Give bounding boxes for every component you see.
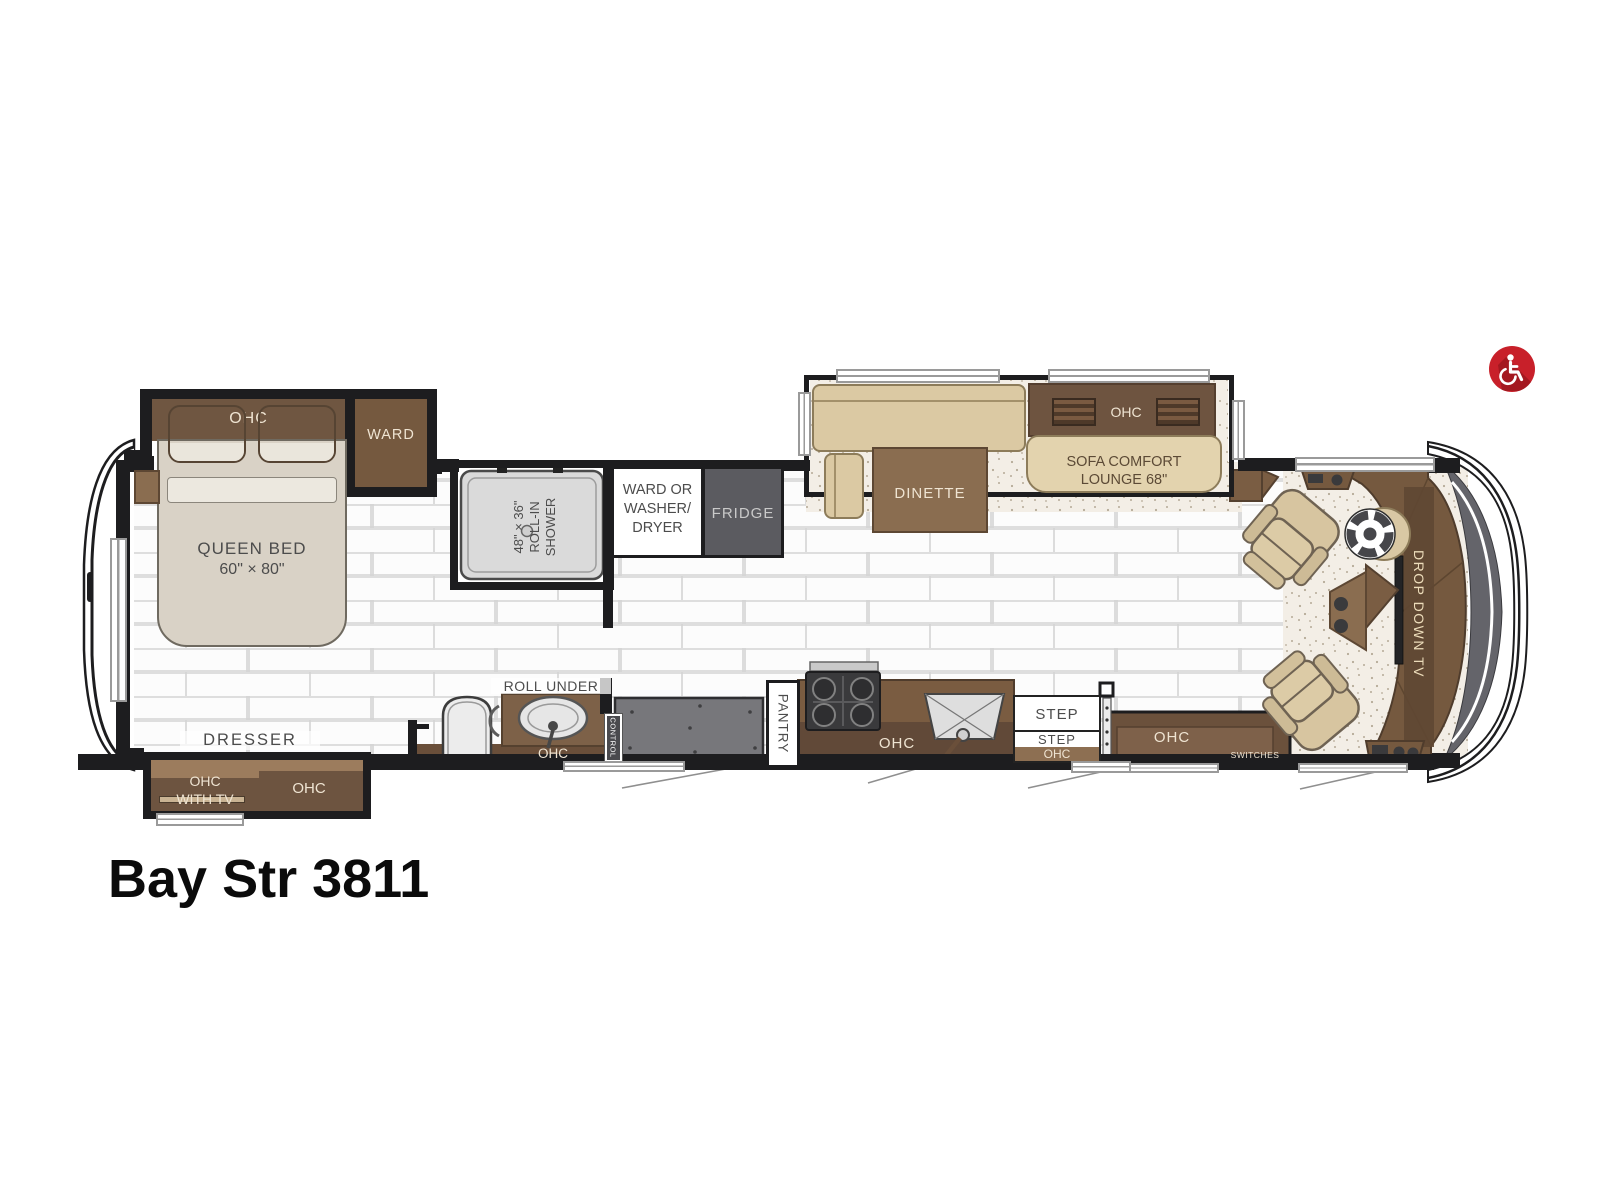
window-frame	[798, 392, 811, 456]
bath-wall-stub	[600, 678, 612, 714]
toilet-icon	[443, 697, 491, 760]
fridge-label: FRIDGE	[705, 505, 781, 522]
vent-icon	[1156, 398, 1200, 426]
bed-size-label: 60" × 80"	[159, 561, 345, 579]
slide-window-frame	[156, 813, 244, 826]
slide-tray	[615, 698, 763, 760]
wardrobe: WARD	[345, 389, 437, 497]
pillow	[168, 405, 246, 463]
bath-door-stub	[408, 720, 417, 762]
wheelchair-icon	[1488, 345, 1536, 393]
floorplan-page: OHC WARD QUEEN BED 60" × 80" DRESSER OHC…	[0, 0, 1600, 1200]
stove-icon	[806, 662, 880, 730]
bedroom-tv	[159, 796, 245, 803]
dinette-chair	[824, 453, 864, 519]
step-upper-label: STEP	[1015, 706, 1099, 723]
bed-label: QUEEN BED	[159, 539, 345, 559]
steering-wheel-icon	[1345, 508, 1410, 560]
sofa-ohc-cabinet: OHC	[1028, 383, 1216, 437]
pillow	[258, 405, 336, 463]
ward-washer-dryer: WARD OR WASHER/ DRYER	[611, 466, 704, 558]
shower-enclosure	[450, 460, 614, 590]
entry-steps: STEP STEP OHC	[1013, 695, 1101, 763]
bed-slide-wall-left	[140, 389, 152, 472]
window-frame	[1295, 457, 1435, 472]
bay-door-frame	[1298, 763, 1408, 773]
rear-window-frame	[110, 538, 127, 702]
bay-door-frame	[1129, 763, 1219, 773]
queen-bed: QUEEN BED 60" × 80"	[157, 439, 347, 647]
dinette-bench	[812, 384, 1026, 452]
ward-label: WARD	[355, 427, 427, 443]
step-lower-label: STEP	[1015, 732, 1099, 747]
window-frame	[1232, 400, 1245, 460]
entry-door-frame	[1071, 761, 1131, 773]
bedroom-slide-ohc-label: OHC	[259, 780, 359, 797]
bath-door-hinge	[417, 724, 429, 729]
vent-icon	[1052, 398, 1096, 426]
bedroom-bottom-slide: OHC WITH TV OHC	[143, 752, 371, 819]
control-panel	[605, 714, 622, 762]
step-ohc-label: OHC	[1015, 747, 1099, 761]
bed-blanket	[167, 477, 337, 503]
dinette-label: DINETTE	[874, 485, 986, 502]
window-frame	[836, 369, 1000, 383]
fridge: FRIDGE	[702, 466, 784, 558]
dinette-table: DINETTE	[872, 447, 988, 533]
bay-door-frame	[563, 761, 685, 772]
page-title: Bay Str 3811	[108, 848, 429, 910]
window-frame	[1048, 369, 1210, 383]
pantry	[766, 680, 800, 768]
sofa: SOFA COMFORT LOUNGE 68"	[1026, 435, 1222, 493]
nightstand	[134, 470, 160, 504]
sofa-ohc-label: OHC	[1096, 404, 1156, 420]
